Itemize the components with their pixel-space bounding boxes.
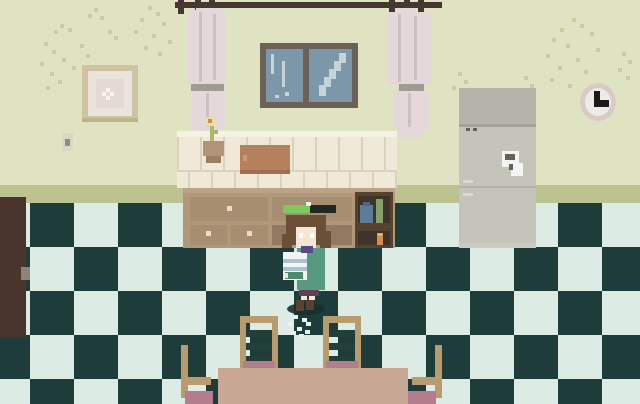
fridge-handle[interactable] (463, 180, 473, 183)
fridge-door-divider (459, 186, 536, 188)
chair-slat (246, 330, 272, 337)
window-reflection (271, 54, 274, 74)
fridge-handle[interactable] (463, 193, 473, 196)
picture-frame-shadow (82, 118, 138, 122)
side-chair-cushion (185, 391, 213, 404)
window-reflection (285, 92, 289, 96)
curtain-fold (414, 16, 417, 80)
cutting-board-shade (240, 170, 290, 174)
side-chair-post (435, 345, 442, 398)
curtain-left (188, 10, 226, 86)
curtain-right (398, 129, 424, 138)
window-reflection (319, 85, 326, 96)
side-chair-seat (412, 377, 442, 385)
fridge-hinge (473, 128, 477, 131)
game-scene[interactable] (0, 0, 640, 404)
chair-slat (329, 330, 355, 337)
flower-leaf (214, 130, 218, 134)
curtain-fold (408, 93, 411, 127)
curtain-right (387, 12, 432, 85)
plant-pot-base (206, 156, 221, 163)
curtain-tie (399, 84, 424, 91)
character[interactable] (282, 215, 331, 312)
floor-crumbs[interactable] (0, 0, 5, 4)
fridge-kick-plate (459, 243, 536, 248)
fridge-note-drawing (509, 164, 513, 170)
window-reflection (282, 61, 285, 87)
drawer-knob[interactable] (247, 231, 252, 236)
chair-slat (246, 343, 272, 350)
shelf-jar[interactable] (360, 205, 373, 223)
side-chair-seat (181, 377, 211, 385)
progress-bar-notch (306, 202, 311, 206)
shelf-candle-flame (378, 233, 382, 236)
curtain-fold (398, 14, 401, 82)
shelf-compartment (358, 231, 390, 245)
shelf-jar-lid (363, 202, 370, 206)
flower-center (208, 119, 212, 123)
fridge-divider (459, 124, 536, 127)
window-reflection (275, 95, 279, 98)
drawer-knob[interactable] (227, 206, 232, 211)
chair-rail (323, 316, 361, 323)
curtain-fold (199, 12, 202, 82)
fridge-hinge (466, 128, 470, 131)
plant-pot (203, 141, 224, 156)
chair-rail (240, 316, 278, 323)
light-switch-toggle[interactable] (65, 139, 70, 146)
counter-tiles (177, 172, 397, 188)
picture-flower (110, 92, 114, 96)
drawer-knob[interactable] (206, 231, 211, 236)
fridge-freezer-door[interactable] (459, 88, 536, 126)
curtain-fold (213, 14, 216, 80)
curtain-tie (191, 84, 224, 91)
side-chair-cushion (408, 391, 436, 404)
curtain-right (394, 91, 429, 129)
picture-flower (106, 96, 110, 100)
door-knob[interactable] (21, 267, 30, 280)
clock-hand-hour (594, 100, 609, 107)
dining-table (218, 368, 408, 404)
shelf-bottle[interactable] (376, 199, 383, 223)
cutting-board-notch (243, 155, 247, 161)
progress-bar-fill (283, 205, 310, 213)
fridge-note-drawing (505, 154, 515, 160)
chair-slat (329, 343, 355, 350)
curtain-ring (178, 0, 184, 14)
